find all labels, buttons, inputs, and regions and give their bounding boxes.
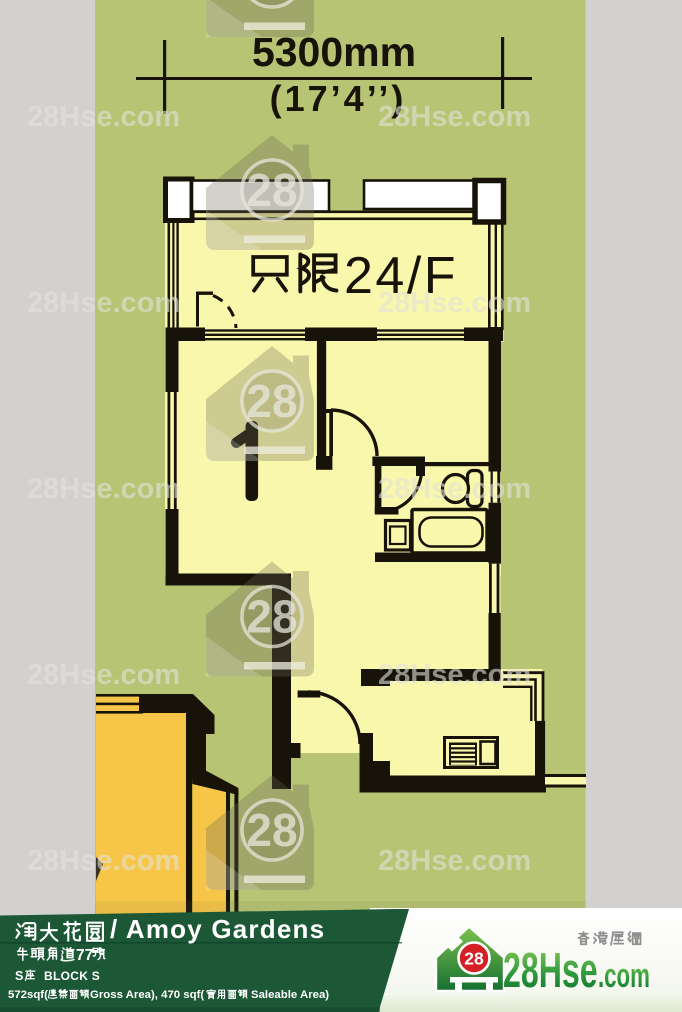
svg-text:28Hse.com: 28Hse.com	[378, 845, 531, 877]
svg-text:Saleable Area): Saleable Area)	[251, 989, 329, 1001]
svg-text:28Hse.com: 28Hse.com	[378, 659, 531, 691]
svg-text:572sqf(: 572sqf(	[8, 989, 48, 1001]
svg-text:28Hse.com: 28Hse.com	[27, 101, 180, 133]
svg-text:28: 28	[246, 591, 297, 643]
svg-text:28Hse.com: 28Hse.com	[378, 473, 531, 505]
svg-text:28: 28	[246, 164, 297, 216]
svg-text:28: 28	[246, 375, 297, 427]
svg-text:28Hse.com: 28Hse.com	[27, 659, 180, 691]
svg-text:S: S	[15, 969, 23, 983]
svg-text:28Hse.com: 28Hse.com	[378, 287, 531, 319]
svg-text:28Hse.com: 28Hse.com	[27, 845, 180, 877]
svg-text:77: 77	[76, 947, 93, 964]
svg-text:BLOCK S: BLOCK S	[44, 969, 100, 983]
svg-text:Gross Area), 470 sqf(: Gross Area), 470 sqf(	[90, 989, 204, 1001]
svg-text:/ Amoy Gardens: / Amoy Gardens	[110, 914, 325, 944]
svg-text:28Hse.com: 28Hse.com	[378, 101, 531, 133]
svg-text:28: 28	[464, 949, 484, 969]
svg-text:28Hse.com: 28Hse.com	[27, 287, 180, 319]
svg-text:28: 28	[246, 0, 297, 3]
svg-text:.com: .com	[598, 957, 650, 995]
svg-text:28Hse: 28Hse	[503, 943, 598, 997]
svg-text:28: 28	[246, 804, 297, 856]
svg-text:28Hse.com: 28Hse.com	[27, 473, 180, 505]
